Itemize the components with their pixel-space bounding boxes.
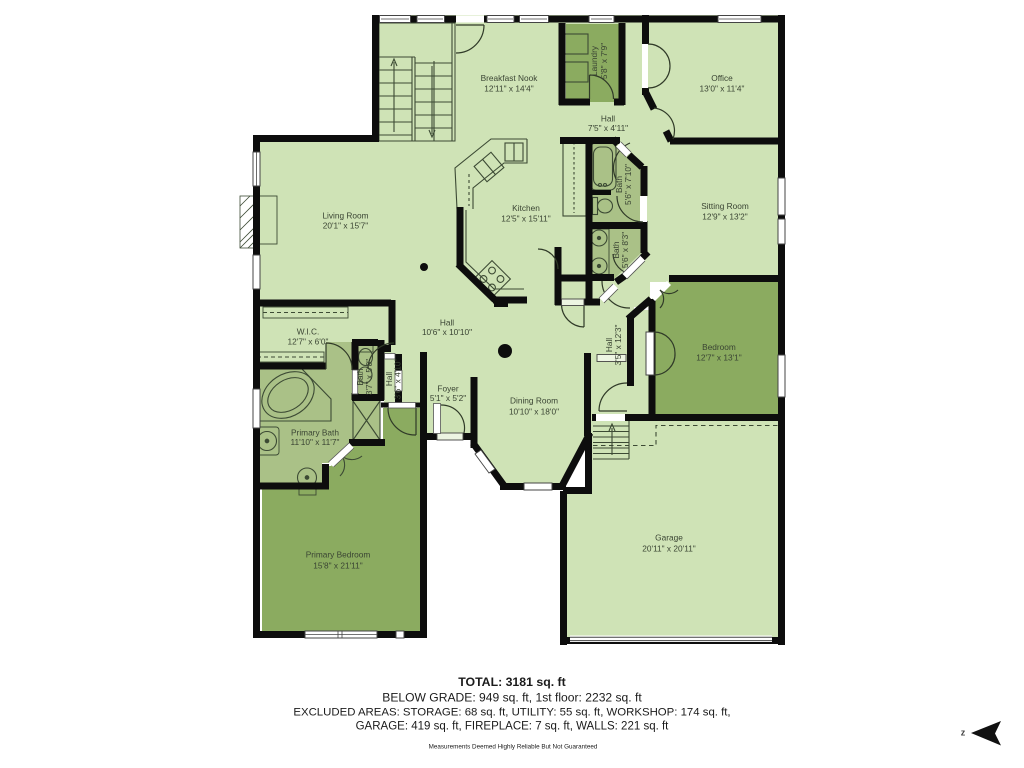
svg-text:13'0" x 11'4": 13'0" x 11'4" (700, 84, 745, 94)
svg-text:15'8" x 21'11": 15'8" x 21'11" (313, 561, 363, 571)
svg-text:z: z (961, 728, 966, 738)
svg-text:3'5" x 12'3": 3'5" x 12'3" (613, 325, 623, 366)
svg-text:11'10" x 11'7": 11'10" x 11'7" (291, 437, 340, 447)
svg-text:Sitting Room: Sitting Room (701, 201, 749, 211)
svg-text:Hall: Hall (440, 318, 454, 328)
svg-text:Breakfast Nook: Breakfast Nook (481, 73, 539, 83)
svg-text:10'10" x 18'0": 10'10" x 18'0" (509, 407, 559, 417)
svg-text:5'1" x 5'2": 5'1" x 5'2" (430, 393, 466, 403)
svg-text:W.I.C.: W.I.C. (297, 327, 320, 337)
svg-text:EXCLUDED AREAS: STORAGE: 68 sq: EXCLUDED AREAS: STORAGE: 68 sq. ft, UTIL… (293, 707, 730, 719)
svg-text:Primary Bedroom: Primary Bedroom (306, 550, 371, 560)
svg-text:Office: Office (711, 73, 733, 83)
svg-text:Laundry: Laundry (589, 45, 599, 76)
svg-text:12'9" x 13'2": 12'9" x 13'2" (702, 212, 748, 222)
svg-text:Primary Bath: Primary Bath (291, 428, 339, 438)
svg-text:TOTAL: 3181 sq. ft: TOTAL: 3181 sq. ft (458, 675, 566, 689)
svg-text:Living Room: Living Room (322, 211, 368, 221)
svg-text:Garage: Garage (655, 533, 683, 543)
svg-text:5'8" x 7'9": 5'8" x 7'9" (599, 43, 609, 79)
svg-text:7'5" x 4'11": 7'5" x 4'11" (588, 123, 628, 133)
svg-text:GARAGE: 419 sq. ft, FIREPLACE:: GARAGE: 419 sq. ft, FIREPLACE: 7 sq. ft,… (356, 721, 670, 733)
svg-text:12'7" x 13'1": 12'7" x 13'1" (696, 353, 742, 363)
svg-text:BELOW GRADE: 949 sq. ft, 1st f: BELOW GRADE: 949 sq. ft, 1st floor: 2232… (382, 691, 642, 705)
svg-text:3'6" x 4'10": 3'6" x 4'10" (393, 359, 403, 400)
svg-text:Kitchen: Kitchen (512, 203, 540, 213)
svg-text:12'11" x 14'4": 12'11" x 14'4" (484, 84, 534, 94)
svg-text:20'1" x 15'7": 20'1" x 15'7" (323, 221, 369, 231)
svg-text:20'11" x 20'11": 20'11" x 20'11" (642, 544, 696, 554)
svg-text:Bedroom: Bedroom (702, 342, 736, 352)
svg-text:Foyer: Foyer (437, 384, 458, 394)
svg-text:5'6" x 8'3": 5'6" x 8'3" (620, 232, 630, 268)
svg-text:5'6" x 7'10": 5'6" x 7'10" (623, 164, 633, 205)
svg-text:Dining Room: Dining Room (510, 396, 558, 406)
svg-text:3'7" x 5'8": 3'7" x 5'8" (364, 359, 374, 395)
svg-text:12'7" x 6'0": 12'7" x 6'0" (288, 337, 329, 347)
svg-text:10'6" x 10'10": 10'6" x 10'10" (422, 327, 472, 337)
svg-text:Measurements Deemed Highly Rel: Measurements Deemed Highly Reliable But … (429, 744, 598, 751)
svg-text:12'5" x 15'11": 12'5" x 15'11" (501, 214, 551, 224)
svg-text:Hall: Hall (601, 114, 615, 124)
